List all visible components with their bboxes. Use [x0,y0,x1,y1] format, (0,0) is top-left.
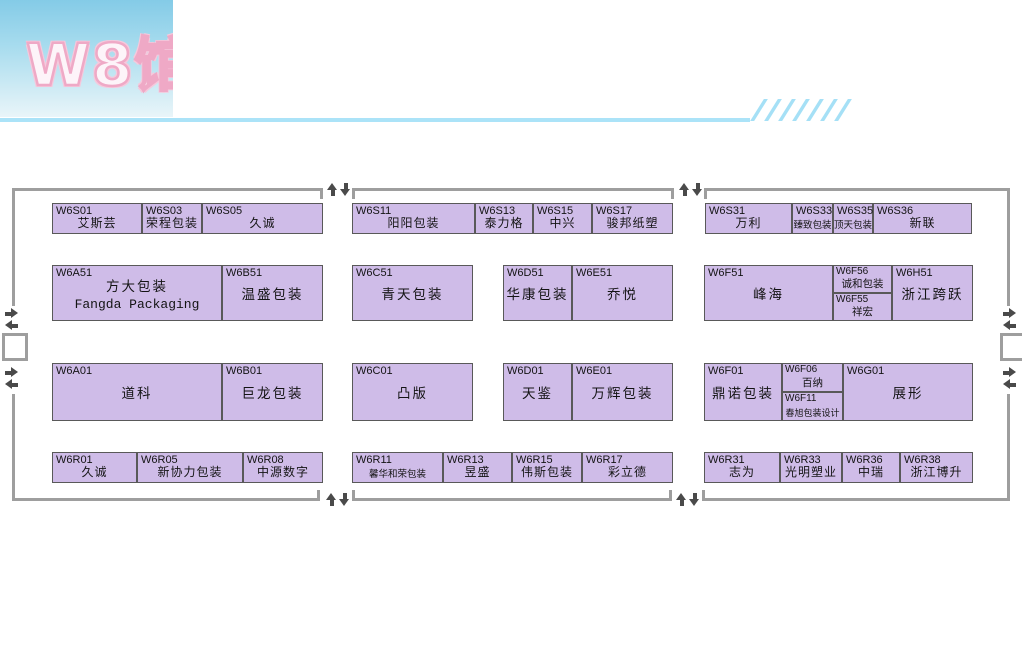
booth-code: W6S35 [837,205,873,217]
booth-w6s05: W6S05久诚 [202,203,323,234]
booth-name: 久诚 [203,214,322,231]
booth-w6d51: W6D51华康包装 [503,265,572,321]
booth-w6f56: W6F56诚和包装 [833,265,892,293]
booth-code: W6A51 [56,267,92,279]
arrow-up-icon [679,183,690,196]
booth-w6s35: W6S35顶天包装 [833,203,873,234]
arrow-up-icon [676,493,687,506]
hall-badge: W8馆 [0,0,173,117]
booth-name: 巨龙包装 [242,382,304,402]
booth-name: 艾斯芸 [53,214,141,231]
booth-name: 青天包装 [382,283,444,303]
slash-marks-decoration [757,99,845,121]
booth-name: 万辉包装 [592,382,654,402]
booth-name: 诚和包装 [834,276,891,291]
hall-wall-stub [352,490,355,501]
booth-name: 中兴 [534,214,591,231]
booth-name-en: Fangda Packaging [75,297,200,312]
booth-name: 道科 [122,382,153,402]
booth-code: W6F01 [708,365,743,377]
booth-w6s17: W6S17骏邦纸塑 [592,203,673,234]
booth-code: W6F51 [708,267,743,279]
hall-wall-stub [352,188,355,199]
booth-w6r13: W6R13昱盛 [443,452,512,483]
booth-name: 春旭包装设计 [783,406,842,419]
hall-wall-left-1 [12,188,15,306]
booth-code: W6R11 [356,454,392,466]
booth-w6r31: W6R31志为 [704,452,780,483]
floorplan-page: W8馆 W6S01艾斯芸 W6S03荣程包装 W6S05久诚 W6S11阳阳包装 [0,0,1022,650]
arrow-right-icon [5,367,18,378]
hall-wall-stub [317,490,320,501]
hall-wall-right-1 [1007,188,1010,306]
booth-code: W6E51 [576,267,612,279]
booth-name: 彩立德 [583,463,672,480]
hall-wall-stub [704,188,707,199]
hall-wall-top-2 [352,188,674,191]
booth-code: W6F11 [785,393,817,405]
arrow-down-icon [689,493,700,506]
booth-w6r11: W6R11馨华和荣包装 [352,452,443,483]
booth-w6r15: W6R15伟斯包装 [512,452,582,483]
booth-name: 峰海 [753,283,784,303]
hall-wall-stub [702,490,705,501]
arrow-right-icon [1003,308,1016,319]
booth-name: 鼎诺包装 [712,382,774,402]
booth-name: 泰力格 [476,214,532,231]
booth-w6a51: W6A51方大包装Fangda Packaging [52,265,222,321]
booth-name: 乔悦 [607,283,638,303]
booth-w6h51: W6H51浙江跨跃 [892,265,973,321]
booth-w6s03: W6S03荣程包装 [142,203,202,234]
booth-w6f01: W6F01鼎诺包装 [704,363,782,421]
booth-w6f06: W6F06百纳 [782,363,843,392]
booth-name: 新联 [874,214,971,231]
hall-wall-bottom-3 [702,498,1010,501]
booth-w6r17: W6R17彩立德 [582,452,673,483]
booth-w6d01: W6D01天鉴 [503,363,572,421]
booth-code: W6G01 [847,365,884,377]
arrow-up-icon [326,493,337,506]
booth-w6b51: W6B51温盛包装 [222,265,323,321]
left-door-vestibule [2,333,28,361]
arrow-down-icon [340,183,351,196]
booth-code: W6A01 [56,365,92,377]
booth-w6e01: W6E01万辉包装 [572,363,673,421]
hall-title: W8馆 [26,18,173,102]
booth-name: 馨华和荣包装 [353,466,442,480]
booth-code: W6H51 [896,267,933,279]
booth-name: 久诚 [53,463,136,480]
booth-name: 光明塑业 [781,463,841,480]
booth-w6r38: W6R38浙江博升 [900,452,973,483]
booth-code: W6S33 [796,205,832,217]
booth-w6r08: W6R08中源数字 [243,452,323,483]
booth-w6c01: W6C01凸版 [352,363,473,421]
arrow-right-icon [5,308,18,319]
booth-name: 顶天包装 [834,217,872,231]
hall-wall-stub [669,490,672,501]
right-door-vestibule [1000,333,1022,361]
booth-w6s01: W6S01艾斯芸 [52,203,142,234]
booth-w6s13: W6S13泰力格 [475,203,533,234]
arrow-left-icon [5,379,18,390]
booth-code: W6D51 [507,267,544,279]
booth-w6f11: W6F11春旭包装设计 [782,392,843,421]
booth-w6s15: W6S15中兴 [533,203,592,234]
booth-name: 温盛包装 [242,283,304,303]
booth-code: W6D01 [507,365,544,377]
arrow-down-icon [339,493,350,506]
booth-name: 万利 [706,214,791,231]
booth-w6r05: W6R05新协力包装 [137,452,243,483]
booth-name: 伟斯包装 [513,463,581,480]
booth-name: 新协力包装 [138,463,242,480]
arrow-left-icon [1003,320,1016,331]
booth-name: 志为 [705,463,779,480]
booth-w6f51: W6F51峰海 [704,265,833,321]
booth-name: 中瑞 [843,463,899,480]
booth-w6b01: W6B01巨龙包装 [222,363,323,421]
booth-w6g01: W6G01展形 [843,363,973,421]
booth-name: 华康包装 [507,283,569,303]
booth-name: 方大包装 [106,275,168,295]
booth-code: W6E01 [576,365,612,377]
booth-w6r33: W6R33光明塑业 [780,452,842,483]
arrow-left-icon [1003,379,1016,390]
booth-name: 凸版 [397,382,428,402]
booth-w6e51: W6E51乔悦 [572,265,673,321]
booth-name: 浙江跨跃 [902,283,964,303]
arrow-left-icon [5,320,18,331]
header-divider-line [0,118,750,122]
hall-wall-right-2 [1007,394,1010,501]
booth-w6r01: W6R01久诚 [52,452,137,483]
booth-name: 祥宏 [834,304,891,319]
booth-code: W6C01 [356,365,393,377]
booth-code: W6B01 [226,365,262,377]
slash-icon [834,99,852,121]
booth-w6a01: W6A01道科 [52,363,222,421]
booth-name: 臻致包装 [793,217,832,231]
booth-name: 浙江博升 [901,463,972,480]
booth-w6s36: W6S36新联 [873,203,972,234]
booth-w6s33: W6S33臻致包装 [792,203,833,234]
booth-name: 阳阳包装 [353,214,474,231]
hall-wall-left-2 [12,394,15,501]
arrow-up-icon [327,183,338,196]
hall-wall-stub [320,188,323,199]
booth-name: 荣程包装 [143,214,201,231]
booth-name: 骏邦纸塑 [593,214,672,231]
booth-w6c51: W6C51青天包装 [352,265,473,321]
booth-code: W6B51 [226,267,262,279]
booth-name: 百纳 [783,375,842,390]
hall-wall-top-1 [12,188,323,191]
booth-name: 天鉴 [522,382,553,402]
arrow-down-icon [692,183,703,196]
booth-w6s31: W6S31万利 [705,203,792,234]
arrow-right-icon [1003,367,1016,378]
booth-name: 展形 [893,382,924,402]
hall-wall-bottom-2 [352,498,672,501]
booth-w6f55: W6F55祥宏 [833,293,892,321]
booth-code: W6C51 [356,267,393,279]
hall-wall-stub [671,188,674,199]
booth-name: 中源数字 [244,463,322,480]
booth-w6s11: W6S11阳阳包装 [352,203,475,234]
booth-name: 昱盛 [444,463,511,480]
hall-wall-bottom-1 [12,498,320,501]
booth-w6r36: W6R36中瑞 [842,452,900,483]
hall-wall-top-3 [704,188,1010,191]
